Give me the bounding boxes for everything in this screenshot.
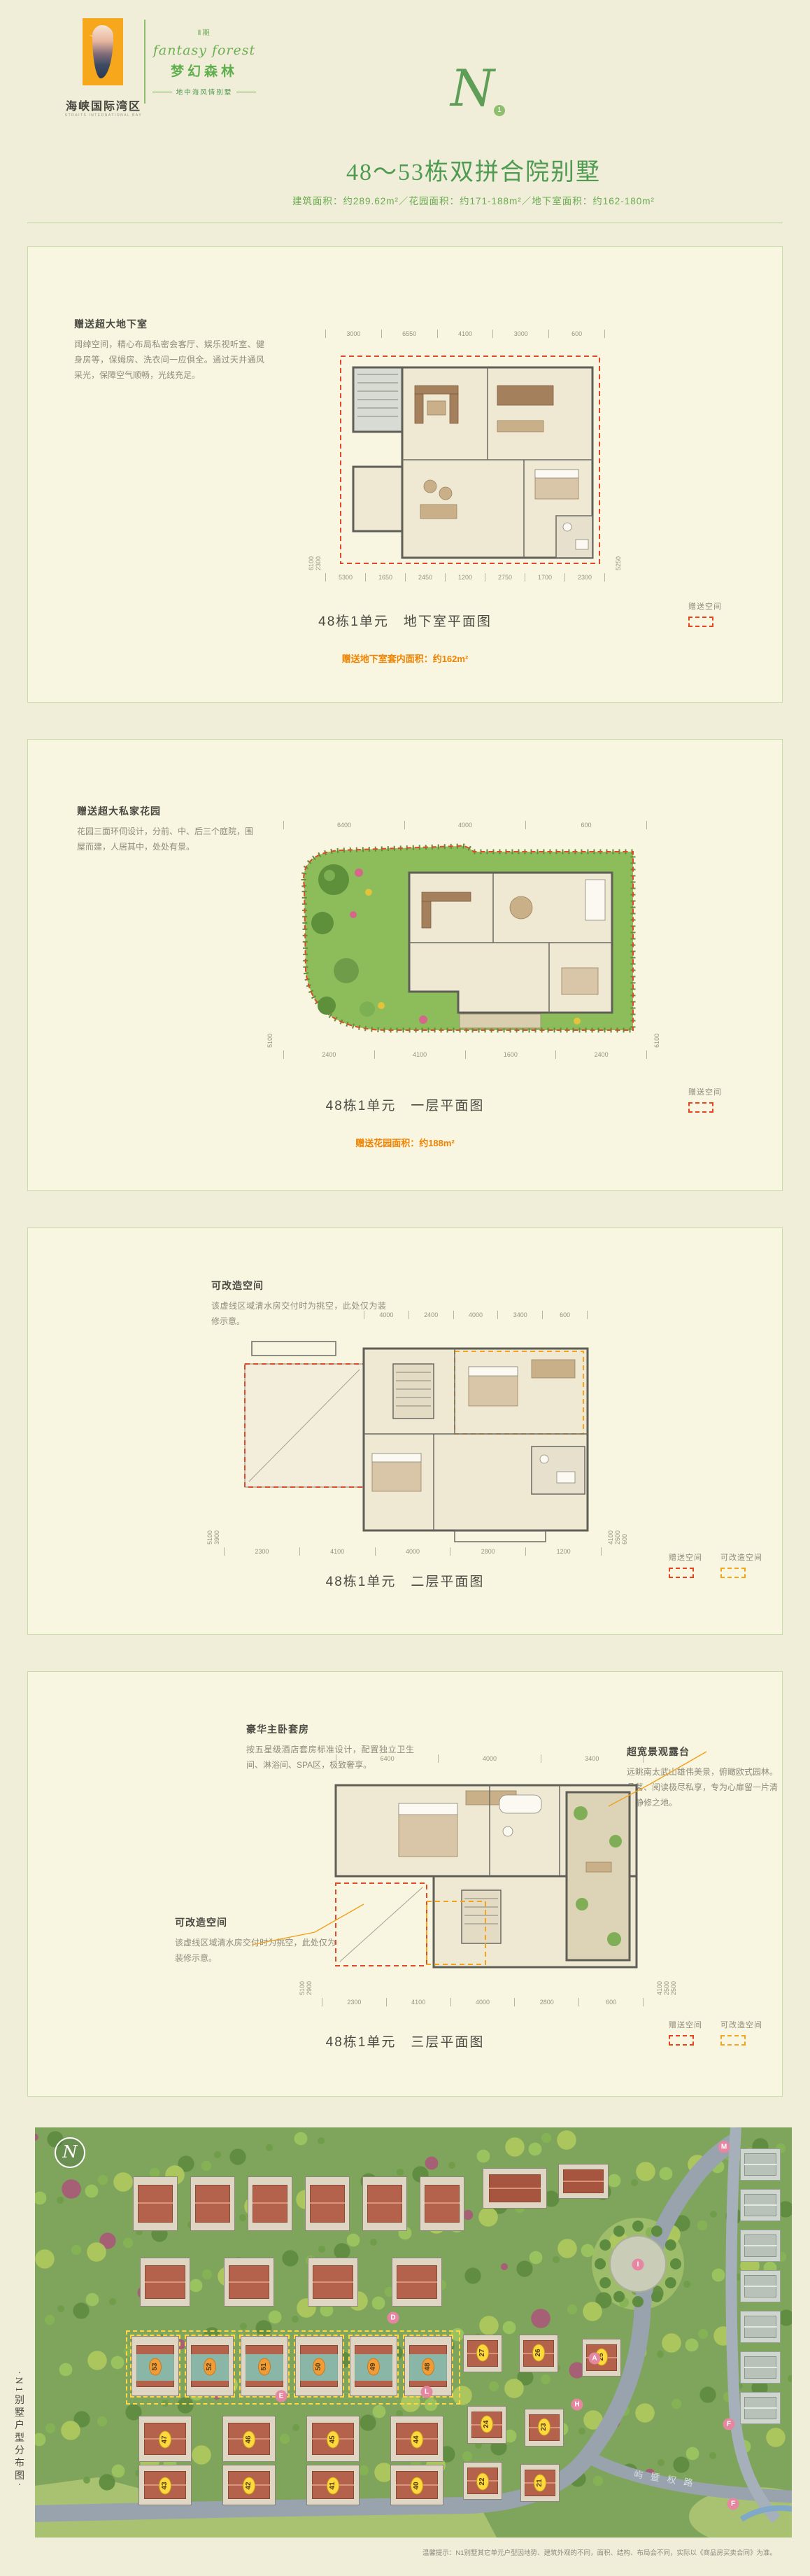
note-garden: 赠送超大私家花园 花园三面环伺设计，分前、中、后三个庭院，围屋而建，人居其中，处…	[77, 804, 253, 854]
villa-building	[740, 2189, 781, 2221]
legend-item: 赠送空间	[688, 1086, 722, 1113]
panel-second-floor: 可改造空间 该虚线区域清水房交付时为挑空，此处仅为装修示意。 400024004…	[27, 1227, 783, 1635]
legend-label: 赠送空间	[688, 1086, 722, 1097]
amenity-letter-marker: E	[276, 2391, 287, 2402]
brand-name: 梦幻森林	[148, 61, 260, 80]
amenity-letter-marker: D	[388, 2312, 399, 2324]
dims-bottom: 23004100400028001200	[224, 1547, 602, 1556]
plan-caption: 48栋1单元 一层平面图	[28, 1095, 782, 1114]
developer-name: 海峡国际湾区	[55, 97, 152, 113]
legend-label: 可改造空间	[720, 1551, 762, 1563]
note-title: 可改造空间	[211, 1279, 386, 1293]
building-number-marker: 24	[481, 2416, 493, 2433]
villa-building	[308, 2258, 358, 2307]
note-basement: 赠送超大地下室 阔绰空间，精心布局私密会客厅、娱乐视听室、健身房等，保姆房、洗衣…	[74, 317, 264, 383]
dims-top: 64004000600	[283, 821, 647, 829]
area-specs: 建筑面积：约289.62m²／花园面积：约171-188m²／地下室面积：约16…	[140, 193, 807, 207]
developer-logo: ~ ~	[83, 18, 123, 85]
amenity-letter-marker: F	[727, 2498, 739, 2510]
bird-icon: ~	[90, 34, 93, 39]
dims-top: 3000655041003000600	[325, 330, 605, 338]
legend-swatch	[688, 617, 713, 627]
note-title: 赠送超大私家花园	[77, 804, 253, 818]
map-emblem: N	[55, 2137, 85, 2168]
third-floor-plan: 640040003400 51002900 410025002500	[234, 1754, 675, 2012]
note-body: 阔绰空间，精心布局私密会客厅、娱乐视听室、健身房等，保姆房、洗衣间一应俱全。通过…	[74, 337, 264, 383]
legend-swatch	[669, 2035, 694, 2046]
basement-floor-plan-drawing	[325, 339, 605, 570]
villa-building	[133, 2176, 178, 2231]
legend-swatch	[669, 1568, 694, 1578]
note-title: 赠送超大地下室	[74, 317, 264, 331]
villa-building	[248, 2176, 292, 2231]
villa-building	[740, 2270, 781, 2302]
building-number-marker: 46	[243, 2431, 255, 2449]
amenity-letter-marker: M	[718, 2141, 730, 2153]
dims-right: 6100	[653, 831, 661, 1048]
site-plan-side-label: ·N1别墅户型分布图·	[11, 2371, 25, 2546]
note-body: 花园三面环伺设计，分前、中、后三个庭院，围屋而建，人居其中，处处有景。	[77, 824, 253, 854]
villa-building	[740, 2311, 781, 2343]
building-number-marker: 49	[367, 2358, 380, 2376]
building-number-marker: 44	[411, 2431, 423, 2449]
building-number-marker: 42	[243, 2477, 255, 2495]
amenity-letter-marker: I	[632, 2259, 644, 2271]
building-number-marker: 26	[532, 2344, 545, 2362]
amenity-letter-marker: L	[421, 2386, 433, 2398]
building-number-marker: 27	[476, 2344, 489, 2362]
building-number-marker: 40	[411, 2477, 423, 2495]
second-floor-plan: 4000240040003400600 51003900 41002500600	[199, 1311, 626, 1561]
panel-basement: 赠送超大地下室 阔绰空间，精心布局私密会客厅、娱乐视听室、健身房等，保姆房、洗衣…	[27, 246, 783, 703]
third-floor-plan-drawing	[259, 1764, 651, 1995]
brochure-page: ~ ~ 海峡国际湾区 STRAITS INTERNATIONAL BAY Ⅱ期 …	[0, 0, 810, 2576]
legend-item: 赠送空间	[669, 2019, 702, 2046]
brand-script: fantasy forest	[148, 43, 260, 58]
plan-caption: 48栋1单元 地下室平面图	[28, 611, 782, 630]
building-number-marker: 48	[422, 2358, 434, 2376]
legend: 赠送空间 可改造空间	[669, 1551, 762, 1578]
legend: 赠送空间	[688, 1086, 722, 1113]
building-number-marker: 41	[327, 2477, 339, 2495]
n1-emblem-sub: 1	[494, 105, 505, 116]
amenity-letter-marker: A	[589, 2353, 601, 2365]
disclaimer-text: 温馨提示：N1别墅其它单元户型因地势、建筑外观的不同，面积、结构、布局会不同，实…	[422, 2547, 776, 2557]
villa-building	[483, 2168, 547, 2209]
first-floor-plan: 64004000600 5100 6100	[259, 821, 672, 1064]
project-brand: Ⅱ期 fantasy forest 梦幻森林 地中海风情别墅	[148, 27, 260, 97]
legend-label: 赠送空间	[669, 1551, 702, 1563]
villa-building	[140, 2258, 190, 2307]
building-number-marker: 22	[476, 2473, 489, 2491]
amenity-letter-marker: F	[723, 2419, 735, 2430]
phase-label: Ⅱ期	[148, 27, 260, 37]
building-number-marker: 51	[258, 2358, 271, 2376]
garden-plan-drawing	[283, 831, 647, 1048]
dims-bottom: 2300410040002800600	[322, 1998, 644, 2006]
island-photo-mark	[92, 25, 113, 78]
dims-left: 61002300	[308, 339, 316, 570]
second-floor-plan-drawing	[224, 1321, 602, 1544]
bird-icon: ~	[104, 24, 107, 29]
legend-item: 可改造空间	[720, 1551, 762, 1578]
n1-emblem: N	[450, 60, 495, 116]
amenity-letter-marker: H	[571, 2399, 583, 2411]
legend-label: 可改造空间	[720, 2019, 762, 2030]
villa-building	[740, 2230, 781, 2262]
villa-building	[362, 2176, 407, 2231]
legend-swatch	[720, 2035, 746, 2046]
dims-bottom: 2400410016002400	[283, 1050, 647, 1059]
building-number-marker: 47	[159, 2431, 171, 2449]
legend-label: 赠送空间	[688, 600, 722, 612]
villa-building	[740, 2392, 781, 2424]
villa-building	[420, 2176, 464, 2231]
dims-left: 5100	[266, 831, 274, 1048]
basement-plan: 3000655041003000600 61002300 5250	[301, 330, 630, 587]
villa-building	[305, 2176, 350, 2231]
villa-building	[190, 2176, 235, 2231]
legend: 赠送空间	[688, 600, 722, 627]
building-number-marker: 23	[538, 2419, 550, 2436]
legend-label: 赠送空间	[669, 2019, 702, 2030]
brand-tagline: 地中海风情别墅	[148, 87, 260, 97]
building-number-marker: 45	[327, 2431, 339, 2449]
dims-bottom: 5300165024501200275017002300	[325, 573, 605, 582]
dims-right: 410025002500	[656, 1764, 665, 1995]
legend-swatch	[688, 1102, 713, 1113]
building-number-marker: 53	[149, 2358, 162, 2376]
villa-building	[740, 2148, 781, 2181]
dims-right: 5250	[614, 339, 623, 570]
villa-building	[558, 2164, 609, 2199]
note-title: 豪华主卧套房	[246, 1722, 414, 1736]
developer-name-en: STRAITS INTERNATIONAL BAY	[55, 113, 152, 118]
dims-right: 41002500600	[607, 1321, 616, 1544]
panel-third-floor: 豪华主卧套房 按五星级酒店套房标准设计，配置独立卫生间、淋浴间、SPA区，极致奢…	[27, 1671, 783, 2097]
legend-item: 赠送空间	[669, 1551, 702, 1578]
panel-first-floor: 赠送超大私家花园 花园三面环伺设计，分前、中、后三个庭院，围屋而建，人居其中，处…	[27, 739, 783, 1191]
header-divider	[144, 20, 145, 104]
villa-building	[392, 2258, 442, 2307]
legend-swatch	[720, 1568, 746, 1578]
gift-area-note: 赠送地下室套内面积：约162m²	[28, 652, 782, 665]
dims-top: 640040003400	[336, 1754, 644, 1763]
divider-rule	[27, 223, 783, 223]
page-title: 48～53栋双拼合院别墅	[140, 153, 807, 187]
legend: 赠送空间 可改造空间	[669, 2019, 762, 2046]
building-number-marker: 21	[534, 2475, 546, 2492]
building-number-marker: 50	[313, 2358, 325, 2376]
legend-item: 可改造空间	[720, 2019, 762, 2046]
building-number-marker: 43	[159, 2477, 171, 2495]
legend-item: 赠送空间	[688, 600, 722, 627]
gift-area-note: 赠送花园面积：约188m²	[28, 1136, 782, 1149]
dims-left: 51003900	[206, 1321, 215, 1544]
villa-building	[224, 2258, 274, 2307]
site-master-plan: 5352515049484746454443424140272625242322…	[35, 2127, 792, 2538]
villa-building	[740, 2351, 781, 2384]
dims-top: 4000240040003400600	[364, 1311, 588, 1319]
building-number-marker: 52	[204, 2358, 216, 2376]
